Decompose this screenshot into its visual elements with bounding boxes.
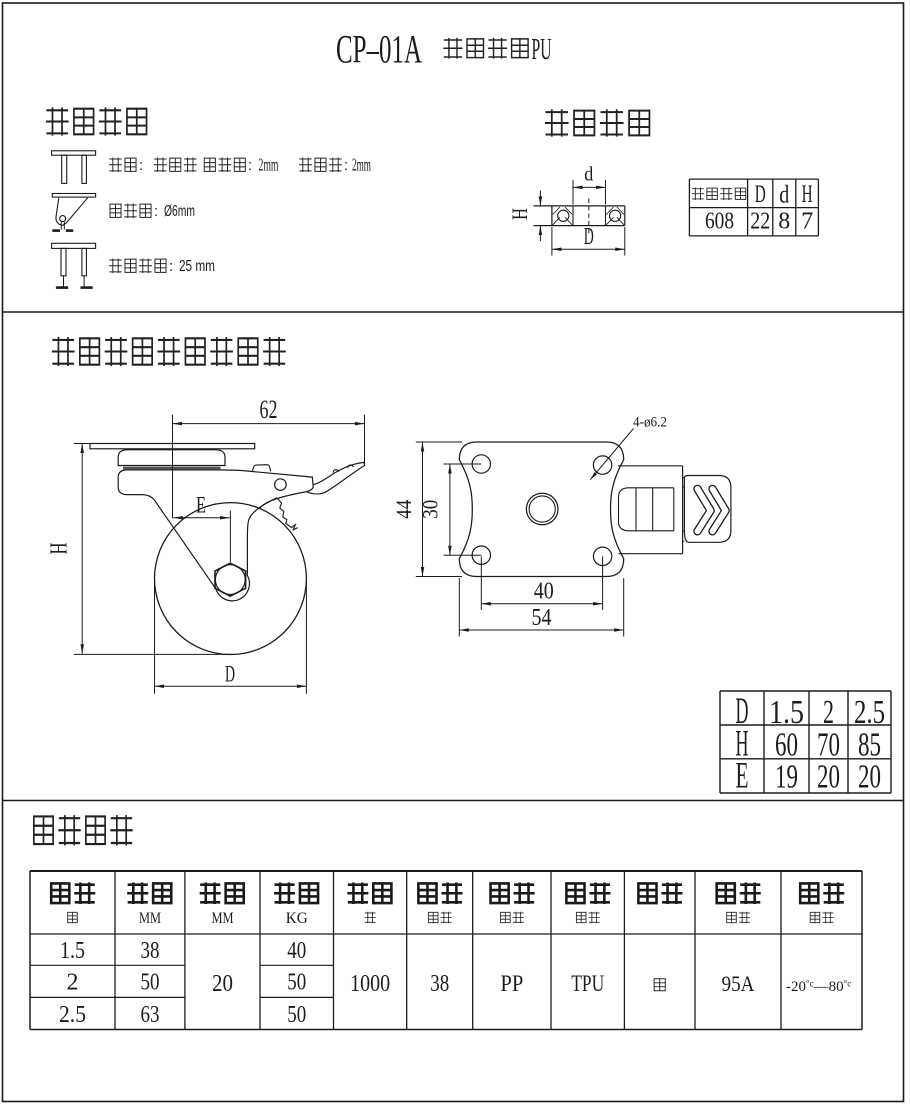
svg-text:38: 38 — [140, 938, 159, 964]
svg-text:50: 50 — [287, 1002, 306, 1028]
svg-text:D: D — [225, 662, 235, 687]
svg-text:4-ø6.2: 4-ø6.2 — [633, 415, 667, 431]
svg-text:63: 63 — [140, 1002, 159, 1028]
svg-text:MM: MM — [211, 910, 233, 927]
svg-text:38: 38 — [430, 971, 449, 997]
svg-text:30: 30 — [418, 500, 443, 519]
svg-text:1.5: 1.5 — [60, 938, 85, 964]
svg-text:608: 608 — [705, 209, 734, 235]
svg-text:d: d — [584, 164, 593, 186]
svg-text::: : — [139, 157, 143, 174]
svg-text:1.5: 1.5 — [769, 694, 804, 731]
svg-text:2: 2 — [823, 694, 834, 731]
svg-text:22: 22 — [750, 209, 770, 235]
svg-text:20: 20 — [817, 759, 840, 796]
svg-text:H: H — [47, 543, 73, 555]
svg-text:62: 62 — [260, 395, 278, 424]
svg-text:2mm: 2mm — [259, 155, 279, 175]
svg-text:1000: 1000 — [350, 971, 390, 997]
svg-text:54: 54 — [532, 605, 552, 631]
svg-text:TPU: TPU — [571, 971, 604, 996]
svg-text:2.5: 2.5 — [59, 1002, 86, 1028]
svg-text:19: 19 — [775, 759, 798, 796]
svg-text:PU: PU — [532, 31, 552, 66]
svg-text:CP–01A: CP–01A — [336, 27, 422, 72]
svg-text:D: D — [584, 224, 594, 250]
svg-text:20: 20 — [858, 759, 881, 796]
svg-text:H: H — [507, 208, 532, 220]
svg-text:50: 50 — [287, 970, 306, 996]
svg-text:40: 40 — [534, 579, 554, 605]
svg-text:MM: MM — [139, 910, 161, 927]
svg-text:50: 50 — [140, 970, 159, 996]
svg-text:44: 44 — [391, 500, 416, 519]
svg-text::: : — [248, 157, 252, 174]
svg-text:2: 2 — [67, 970, 79, 996]
svg-text:d: d — [779, 182, 789, 209]
svg-text:KG: KG — [286, 910, 308, 927]
svg-text:7: 7 — [801, 209, 813, 235]
svg-text:E: E — [196, 493, 206, 518]
svg-text::: : — [344, 157, 348, 174]
svg-text:-20°c—80°c: -20°c—80°c — [786, 978, 851, 995]
svg-text:2mm: 2mm — [352, 155, 371, 175]
svg-text:95A: 95A — [722, 971, 755, 996]
svg-text:40: 40 — [287, 938, 306, 964]
svg-text::: : — [169, 258, 173, 275]
svg-text:20: 20 — [212, 971, 233, 997]
svg-text:8: 8 — [778, 209, 790, 235]
svg-text:Ø6mm: Ø6mm — [164, 203, 195, 220]
svg-text:2.5: 2.5 — [854, 694, 885, 731]
svg-text:25 mm: 25 mm — [179, 258, 215, 275]
svg-text:D: D — [755, 181, 766, 208]
svg-text:PP: PP — [500, 971, 523, 996]
svg-text::: : — [154, 203, 158, 220]
svg-text:E: E — [736, 756, 749, 797]
svg-text:H: H — [802, 181, 813, 208]
